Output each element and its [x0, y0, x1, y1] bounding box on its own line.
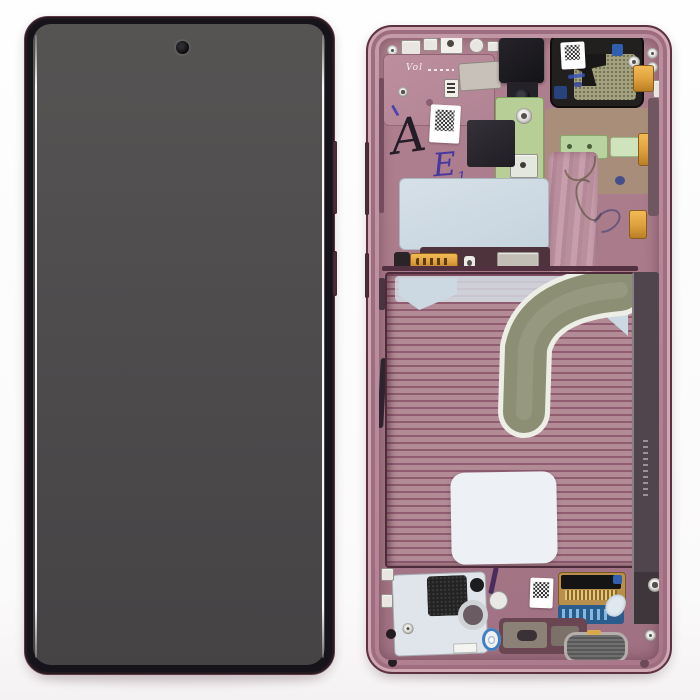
display-assembly-back-view: Vol	[366, 25, 672, 674]
top-bracket	[401, 40, 421, 55]
frame-crossbar	[382, 266, 638, 271]
vol-script-marking: Vol	[406, 64, 423, 73]
display-assembly-front-view	[24, 16, 335, 675]
bracket	[381, 594, 393, 608]
black-screw	[386, 629, 396, 639]
power-button	[333, 251, 337, 296]
white-tab	[453, 643, 477, 654]
top-bracket	[469, 38, 484, 53]
left-curved-edge-reflection	[35, 35, 37, 658]
volume-button	[333, 141, 337, 214]
screw	[645, 630, 656, 641]
top-bracket	[423, 38, 438, 51]
screw	[402, 623, 413, 634]
assembly-cavity: Vol	[379, 38, 659, 660]
part-number-marking	[643, 440, 648, 498]
bracket	[381, 568, 394, 581]
top-bracket	[487, 41, 499, 52]
blue-square-sticker	[554, 86, 567, 99]
washer-ring	[458, 600, 488, 630]
left-edge-rib	[379, 78, 384, 213]
connector-pins	[416, 258, 450, 265]
battery-pull-tab	[450, 471, 558, 565]
right-curved-edge-reflection	[322, 35, 324, 658]
front-camera-punch-hole	[176, 41, 189, 54]
bottom-right-frame-screw	[640, 659, 649, 668]
screw	[648, 578, 659, 592]
screw-boss	[516, 108, 532, 124]
corner-screw	[647, 48, 658, 59]
back-power-button	[365, 253, 369, 298]
side-flex-strip	[632, 272, 659, 624]
top-bracket-hole	[447, 40, 454, 47]
gray-bracket	[458, 61, 502, 92]
blue-square-sticker	[613, 575, 622, 584]
battery-compartment	[385, 272, 642, 568]
bottom-qr-label	[529, 578, 553, 609]
gold-tab	[587, 630, 601, 635]
shield-chip	[467, 120, 515, 167]
speaker-qr-label	[560, 41, 585, 69]
microphone-hole	[470, 578, 484, 592]
marker-letter-a: A	[388, 110, 429, 162]
grommet-center	[488, 636, 495, 644]
screen-panel	[33, 24, 325, 665]
earpiece-speaker-assembly	[550, 38, 644, 108]
screw	[398, 87, 408, 97]
right-edge-rib	[648, 98, 659, 216]
blue-square-sticker	[612, 44, 623, 56]
product-photo-stage: Vol	[0, 0, 700, 700]
qr-label	[429, 104, 461, 144]
blue-pen-dot	[574, 82, 582, 87]
back-volume-button	[365, 142, 369, 215]
gold-contact	[629, 210, 647, 239]
loudspeaker-grille	[564, 632, 628, 660]
label-lines-icon	[444, 79, 459, 98]
label-lines	[447, 83, 455, 93]
script-underline-dots	[428, 69, 454, 71]
blue-grommet	[482, 628, 501, 651]
gold-contact	[633, 65, 654, 92]
blue-ink-dot	[615, 176, 625, 185]
front-camera-module	[499, 38, 544, 83]
pcb-bracket-hole	[520, 162, 526, 168]
fpc-connector-housing	[561, 575, 621, 589]
graphite-film-plate	[399, 178, 549, 250]
usb-c-port	[517, 630, 537, 641]
